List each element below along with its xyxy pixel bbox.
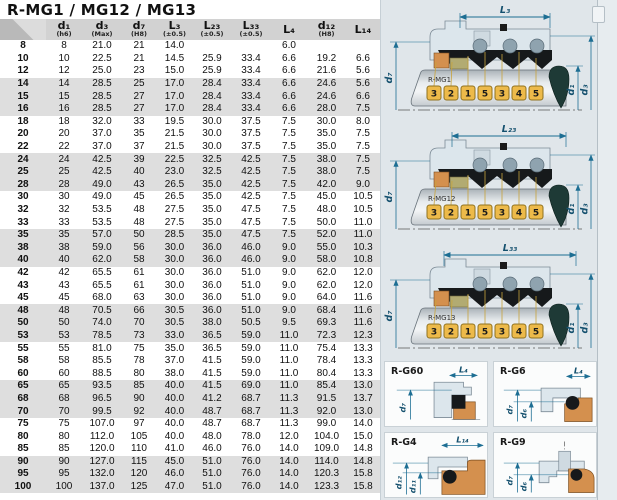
value-cell: 107.0: [82, 418, 122, 431]
value-cell: 68.4: [307, 304, 346, 317]
value-cell: 30.0: [193, 141, 231, 154]
value-cell: 30.0: [156, 267, 193, 280]
value-cell: 42.5: [231, 191, 271, 204]
part-tag: 2: [448, 328, 454, 338]
value-cell: 78.5: [82, 330, 122, 343]
value-cell: 28.4: [193, 103, 231, 116]
value-cell: 42.0: [307, 179, 346, 192]
value-cell: 6.6: [271, 65, 307, 78]
value-cell: 40.0: [156, 430, 193, 443]
value-cell: 22: [46, 141, 82, 154]
dim-label-d1: d₁: [566, 204, 577, 215]
table-body: 8821.02114.06.0101022.52114.525.933.46.6…: [0, 40, 380, 493]
value-cell: 36.5: [193, 330, 231, 343]
value-cell: 30: [46, 191, 82, 204]
part-tag: 4: [516, 90, 522, 100]
table-row: 121225.02315.025.933.46.621.65.6: [0, 65, 380, 78]
value-cell: 53.5: [82, 216, 122, 229]
size-cell: 30: [0, 191, 46, 204]
value-cell: 5.6: [346, 65, 380, 78]
value-cell: 32.5: [193, 153, 231, 166]
seat-card-title: R-G4: [391, 437, 417, 448]
size-cell: 8: [0, 40, 46, 53]
dim-label-d1: d₁: [566, 323, 577, 334]
value-cell: 50.0: [307, 216, 346, 229]
table-row: 686896.59040.041.268.711.391.513.7: [0, 393, 380, 406]
value-cell: 22.5: [156, 153, 193, 166]
dim-label-L3: L₃: [500, 5, 511, 16]
value-cell: [231, 40, 271, 53]
value-cell: [193, 40, 231, 53]
value-cell: 33: [46, 216, 82, 229]
table-row: 353557.05028.535.047.57.552.011.0: [0, 229, 380, 242]
value-cell: 28.4: [193, 90, 231, 103]
size-cell: 42: [0, 267, 46, 280]
value-cell: 36.0: [193, 242, 231, 255]
value-cell: 11.3: [271, 393, 307, 406]
value-cell: 38.0: [156, 367, 193, 380]
value-cell: 30.0: [156, 279, 193, 292]
seat-card-rg4: L₁₄ d₁₂ d₁₁ R-G4: [384, 432, 488, 498]
dimension-table: d₁(h6)d₃(Max)d₇(H8)L₃(±0.5)L₂₃(±0.5)L₃₃(…: [0, 19, 380, 493]
value-cell: 9.5: [271, 317, 307, 330]
value-cell: 90: [122, 393, 156, 406]
value-cell: 11.0: [271, 355, 307, 368]
seat-card-title: R-G6: [500, 366, 526, 377]
dim-label-d7: d₇: [505, 405, 515, 415]
dim-label-d3: d₃: [580, 84, 591, 96]
size-cell: 22: [0, 141, 46, 154]
table-row: 161628.52717.028.433.46.628.07.5: [0, 103, 380, 116]
value-cell: 95: [46, 468, 82, 481]
value-cell: 47.5: [231, 216, 271, 229]
seat-cards: L₄ d₇ R-G60 L₄ d₇ d₆: [384, 361, 597, 498]
value-cell: 28.5: [82, 78, 122, 91]
value-cell: 120.0: [82, 443, 122, 456]
value-cell: 51.0: [231, 304, 271, 317]
table-row: 100100137.012547.051.076.014.0123.315.8: [0, 481, 380, 494]
value-cell: 61: [122, 267, 156, 280]
value-cell: 33.4: [231, 65, 271, 78]
value-cell: 48.7: [193, 405, 231, 418]
value-cell: 30.0: [307, 116, 346, 129]
value-cell: 105: [122, 430, 156, 443]
value-cell: 14.0: [346, 418, 380, 431]
part-tag: 3: [499, 90, 505, 100]
value-cell: 48: [46, 304, 82, 317]
dim-label-d7: d₇: [384, 192, 395, 203]
value-cell: 40.0: [156, 405, 193, 418]
value-cell: 37.0: [82, 128, 122, 141]
value-cell: 14: [46, 78, 82, 91]
value-cell: 35.0: [193, 204, 231, 217]
value-cell: 11.0: [271, 380, 307, 393]
value-cell: 10.5: [346, 191, 380, 204]
value-cell: 46.0: [193, 443, 231, 456]
part-tag: 3: [431, 90, 437, 100]
value-cell: 30.0: [156, 242, 193, 255]
part-tag: 2: [448, 90, 454, 100]
value-cell: 69.0: [231, 380, 271, 393]
column-header: d₁(h6): [46, 19, 82, 40]
value-cell: 7.5: [271, 166, 307, 179]
value-cell: 51.0: [231, 292, 271, 305]
table-row: 323253.54827.535.047.57.548.010.5: [0, 204, 380, 217]
diagram-panel: L₃ d₇ d₁ d₃ R-MG1 3 2 1 5 3 4 5: [380, 0, 617, 500]
panel-edge-strip: [597, 0, 617, 500]
part-tag: 5: [482, 328, 488, 338]
value-cell: 74.0: [82, 317, 122, 330]
value-cell: [307, 40, 346, 53]
value-cell: 59.0: [231, 367, 271, 380]
value-cell: 65: [46, 380, 82, 393]
column-header: L₄: [271, 19, 307, 40]
value-cell: 15.8: [346, 468, 380, 481]
value-cell: 12.0: [271, 430, 307, 443]
value-cell: 41.5: [193, 380, 231, 393]
value-cell: 93.5: [82, 380, 122, 393]
value-cell: 11.3: [271, 418, 307, 431]
size-cell: 45: [0, 292, 46, 305]
value-cell: 12: [46, 65, 82, 78]
part-tag: 1: [465, 209, 471, 219]
table-row: 101022.52114.525.933.46.619.26.6: [0, 53, 380, 66]
value-cell: 27.5: [156, 216, 193, 229]
dim-label-d7: d₇: [398, 403, 408, 413]
value-cell: 99.0: [307, 418, 346, 431]
value-cell: 9.0: [271, 242, 307, 255]
value-cell: 37.5: [231, 116, 271, 129]
table-row: 151528.52717.028.433.46.624.66.6: [0, 90, 380, 103]
value-cell: 33: [122, 116, 156, 129]
value-cell: 7.5: [271, 229, 307, 242]
dim-label-d1: d₁: [566, 85, 577, 96]
value-cell: 41.2: [193, 393, 231, 406]
value-cell: 127.0: [82, 456, 122, 469]
value-cell: 32.5: [193, 166, 231, 179]
value-cell: 6.6: [271, 103, 307, 116]
value-cell: 21.0: [82, 40, 122, 53]
value-cell: 114.0: [307, 456, 346, 469]
value-cell: 88.5: [82, 367, 122, 380]
value-cell: 91.5: [307, 393, 346, 406]
part-tag: 5: [533, 90, 539, 100]
part-tag: 5: [533, 328, 539, 338]
value-cell: 28.0: [307, 103, 346, 116]
value-cell: 11.0: [346, 216, 380, 229]
value-cell: 62.0: [82, 254, 122, 267]
table-row: 383859.05630.036.046.09.055.010.3: [0, 242, 380, 255]
table-header: d₁(h6)d₃(Max)d₇(H8)L₃(±0.5)L₂₃(±0.5)L₃₃(…: [0, 19, 380, 40]
value-cell: 38.0: [307, 166, 346, 179]
part-tag: 2: [448, 209, 454, 219]
value-cell: 65.5: [82, 279, 122, 292]
table-row: 303049.04526.535.042.57.545.010.5: [0, 191, 380, 204]
value-cell: 59.0: [231, 342, 271, 355]
value-cell: 43: [46, 279, 82, 292]
value-cell: 46.0: [231, 242, 271, 255]
table-row: 454568.06330.036.051.09.064.011.6: [0, 292, 380, 305]
size-cell: 12: [0, 65, 46, 78]
value-cell: 24.6: [307, 78, 346, 91]
value-cell: 11.3: [271, 405, 307, 418]
value-cell: 7.5: [271, 153, 307, 166]
value-cell: 10.5: [346, 204, 380, 217]
column-header: L₃(±0.5): [156, 19, 193, 40]
value-cell: 47.0: [156, 481, 193, 494]
value-cell: 30.5: [156, 317, 193, 330]
table-row: 9595132.012046.051.076.014.0120.315.8: [0, 468, 380, 481]
seat-card-title: R-G9: [500, 437, 526, 448]
dim-label-L4: L₄: [574, 365, 583, 375]
value-cell: 11.6: [346, 317, 380, 330]
value-cell: 97: [122, 418, 156, 431]
value-cell: 14.5: [156, 53, 193, 66]
value-cell: 37.0: [82, 141, 122, 154]
size-cell: 18: [0, 116, 46, 129]
size-cell: 38: [0, 242, 46, 255]
dim-label-d3: d₃: [580, 322, 591, 334]
dim-label-L23: L₂₃: [502, 124, 517, 135]
panel-collapse-handle[interactable]: [592, 6, 605, 23]
value-cell: 85.4: [307, 380, 346, 393]
value-cell: 42.5: [231, 166, 271, 179]
seat-card-rg60: L₄ d₇ R-G60: [384, 361, 488, 427]
size-cell: 43: [0, 279, 46, 292]
value-cell: 28.5: [156, 229, 193, 242]
value-cell: 50: [46, 317, 82, 330]
value-cell: 53.5: [82, 204, 122, 217]
table-row: 222237.03721.530.037.57.535.07.5: [0, 141, 380, 154]
part-tag: 3: [431, 328, 437, 338]
value-cell: 10.3: [346, 242, 380, 255]
size-cell: 68: [0, 393, 46, 406]
value-cell: 37.5: [231, 141, 271, 154]
value-cell: 8: [46, 40, 82, 53]
value-cell: 30.0: [193, 116, 231, 129]
value-cell: 21.6: [307, 65, 346, 78]
value-cell: 12.3: [346, 330, 380, 343]
value-cell: 70.5: [82, 304, 122, 317]
value-cell: 36.0: [193, 292, 231, 305]
size-cell: 60: [0, 367, 46, 380]
value-cell: 21: [122, 40, 156, 53]
value-cell: 6.6: [271, 90, 307, 103]
value-cell: 80: [46, 430, 82, 443]
value-cell: 48: [122, 216, 156, 229]
value-cell: 32: [46, 204, 82, 217]
size-cell: 28: [0, 179, 46, 192]
value-cell: 40: [122, 166, 156, 179]
size-cell: 65: [0, 380, 46, 393]
dim-label-d7: d₇: [505, 476, 515, 486]
value-cell: 14.0: [271, 443, 307, 456]
value-cell: 53: [46, 330, 82, 343]
value-cell: 13.0: [346, 405, 380, 418]
value-cell: 68.7: [231, 405, 271, 418]
value-cell: 65.5: [82, 267, 122, 280]
value-cell: 68.7: [231, 418, 271, 431]
value-cell: 104.0: [307, 430, 346, 443]
value-cell: 73: [122, 330, 156, 343]
part-tag: 1: [465, 328, 471, 338]
page-title: R-MG1 / MG12 / MG13: [7, 2, 380, 18]
value-cell: 45.0: [156, 456, 193, 469]
dim-label-d6: d₆: [518, 481, 528, 491]
part-tag: 4: [516, 328, 522, 338]
value-cell: 10.8: [346, 254, 380, 267]
value-cell: 115: [122, 456, 156, 469]
value-cell: 76.0: [231, 468, 271, 481]
value-cell: 28.5: [82, 103, 122, 116]
value-cell: 40.0: [156, 380, 193, 393]
value-cell: 109.0: [307, 443, 346, 456]
value-cell: 96.5: [82, 393, 122, 406]
value-cell: 21: [122, 53, 156, 66]
value-cell: 30.0: [156, 254, 193, 267]
value-cell: 23: [122, 65, 156, 78]
value-cell: 41.5: [193, 367, 231, 380]
value-cell: 13.3: [346, 355, 380, 368]
size-cell: 95: [0, 468, 46, 481]
part-tag: 3: [499, 209, 505, 219]
value-cell: 7.5: [271, 216, 307, 229]
value-cell: 11.6: [346, 292, 380, 305]
value-cell: 85: [122, 380, 156, 393]
value-cell: 23.0: [156, 166, 193, 179]
seal-cross-section-mg12-drawing: L₂₃ d₇ d₁ d₃ R-MG12 3 2 1 5 3 4 5: [382, 121, 598, 240]
value-cell: 112.0: [82, 430, 122, 443]
value-cell: 92: [122, 405, 156, 418]
value-cell: 76.0: [231, 481, 271, 494]
size-cell: 20: [0, 128, 46, 141]
column-header: [0, 19, 46, 40]
table-row: 434365.56130.036.051.09.062.012.0: [0, 279, 380, 292]
value-cell: 10: [46, 53, 82, 66]
value-cell: 61: [122, 279, 156, 292]
value-cell: 43: [122, 179, 156, 192]
table-row: 8080112.010540.048.078.012.0104.015.0: [0, 430, 380, 443]
size-cell: 48: [0, 304, 46, 317]
table-row: 707099.59240.048.768.711.392.013.0: [0, 405, 380, 418]
table-row: 555581.07535.036.559.011.075.413.3: [0, 342, 380, 355]
value-cell: 13.3: [346, 367, 380, 380]
value-cell: [346, 40, 380, 53]
value-cell: 76.0: [231, 443, 271, 456]
value-cell: 17.0: [156, 90, 193, 103]
value-cell: 42.5: [231, 153, 271, 166]
seal-name-label: R-MG12: [428, 195, 455, 203]
value-cell: 17.0: [156, 78, 193, 91]
value-cell: 12.0: [346, 267, 380, 280]
size-cell: 53: [0, 330, 46, 343]
value-cell: 75: [122, 342, 156, 355]
table-row: 656593.58540.041.569.011.085.413.0: [0, 380, 380, 393]
value-cell: 85.5: [82, 355, 122, 368]
dim-label-d6: d₆: [518, 408, 528, 418]
table-row: 7575107.09740.048.768.711.399.014.0: [0, 418, 380, 431]
table-row: 252542.54023.032.542.57.538.07.5: [0, 166, 380, 179]
value-cell: 15.0: [346, 430, 380, 443]
part-tag: 5: [482, 90, 488, 100]
table-row: 282849.04326.535.042.57.542.09.0: [0, 179, 380, 192]
value-cell: 69.3: [307, 317, 346, 330]
value-cell: 48: [122, 204, 156, 217]
value-cell: 48.0: [193, 430, 231, 443]
value-cell: 39: [122, 153, 156, 166]
value-cell: 51.0: [193, 456, 231, 469]
value-cell: 51.0: [193, 468, 231, 481]
value-cell: 36.5: [193, 342, 231, 355]
value-cell: 92.0: [307, 405, 346, 418]
size-cell: 14: [0, 78, 46, 91]
size-cell: 35: [0, 229, 46, 242]
value-cell: 7.5: [271, 128, 307, 141]
seal-name-label: R-MG1: [428, 76, 451, 84]
table-row: 424265.56130.036.051.09.062.012.0: [0, 267, 380, 280]
value-cell: 125: [122, 481, 156, 494]
seal-diagrams: L₃ d₇ d₁ d₃ R-MG1 3 2 1 5 3 4 5: [381, 2, 598, 359]
value-cell: 49.0: [82, 179, 122, 192]
value-cell: 78.0: [231, 430, 271, 443]
value-cell: 60: [46, 367, 82, 380]
value-cell: 30.0: [156, 292, 193, 305]
value-cell: 35.0: [156, 342, 193, 355]
value-cell: 35.0: [193, 179, 231, 192]
value-cell: 5.6: [346, 78, 380, 91]
size-cell: 24: [0, 153, 46, 166]
size-cell: 90: [0, 456, 46, 469]
value-cell: 40: [46, 254, 82, 267]
value-cell: 12.0: [346, 279, 380, 292]
value-cell: 7.5: [346, 166, 380, 179]
value-cell: 64.0: [307, 292, 346, 305]
value-cell: 17.0: [156, 103, 193, 116]
value-cell: 7.5: [346, 141, 380, 154]
value-cell: 123.3: [307, 481, 346, 494]
seal-name-label: R-MG13: [428, 314, 455, 322]
value-cell: 28.4: [193, 78, 231, 91]
value-cell: 35.0: [193, 216, 231, 229]
value-cell: 9.0: [346, 179, 380, 192]
table-row: 8585120.011041.046.076.014.0109.014.8: [0, 443, 380, 456]
table-row: 202037.03521.530.037.57.535.07.5: [0, 128, 380, 141]
value-cell: 15.0: [156, 65, 193, 78]
value-cell: 13.3: [346, 342, 380, 355]
column-header: L₁₄: [346, 19, 380, 40]
value-cell: 37.0: [156, 355, 193, 368]
value-cell: 68.0: [82, 292, 122, 305]
value-cell: 7.5: [271, 116, 307, 129]
value-cell: 62.0: [307, 267, 346, 280]
value-cell: 24: [46, 153, 82, 166]
size-cell: 85: [0, 443, 46, 456]
value-cell: 15.8: [346, 481, 380, 494]
value-cell: 72.3: [307, 330, 346, 343]
value-cell: 33.4: [231, 78, 271, 91]
value-cell: 14.0: [271, 481, 307, 494]
size-cell: 70: [0, 405, 46, 418]
value-cell: 42: [46, 267, 82, 280]
seat-card-rg6: L₄ d₇ d₆ R-G6: [493, 361, 597, 427]
value-cell: 36.0: [193, 304, 231, 317]
value-cell: 18: [46, 116, 82, 129]
value-cell: 68: [46, 393, 82, 406]
value-cell: 110: [122, 443, 156, 456]
table-row: 404062.05830.036.046.09.058.010.8: [0, 254, 380, 267]
value-cell: 25.9: [193, 65, 231, 78]
value-cell: 7.5: [271, 179, 307, 192]
